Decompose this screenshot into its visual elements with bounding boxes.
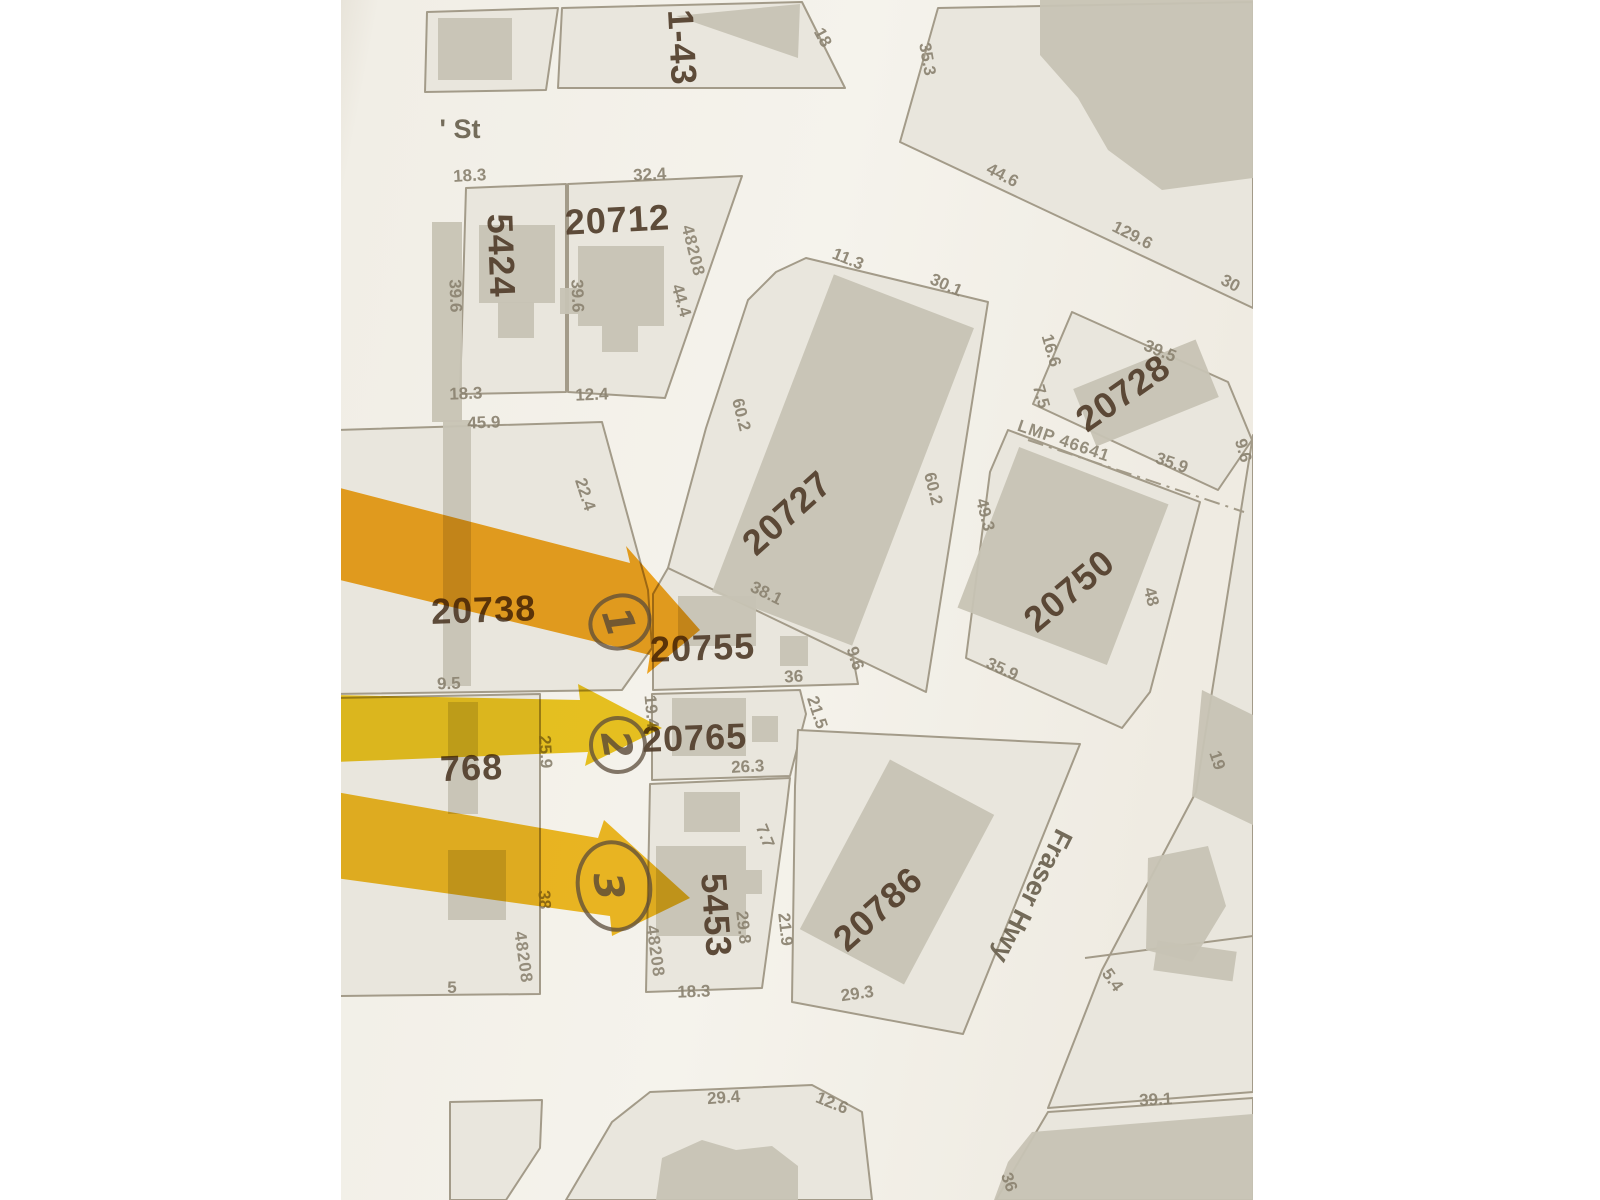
- dimension-label: 39.1: [1139, 1089, 1173, 1110]
- plat-map-screenshot: ' St Fraser Hwy 5424 20712 1-43 20727 20…: [0, 0, 1600, 1200]
- building: [498, 302, 534, 338]
- dimension-label: 18.3: [677, 981, 711, 1001]
- lot-label-1-43: 1-43: [660, 8, 705, 86]
- dimension-label: 36: [784, 667, 804, 687]
- dimension-label: 26.3: [731, 756, 765, 777]
- dimension-label: 39.6: [445, 279, 465, 313]
- dimension-label: 5: [447, 978, 456, 997]
- dimension-label: 29.8: [732, 910, 754, 945]
- building: [780, 636, 808, 666]
- building: [602, 326, 638, 352]
- dimension-label: 39.6: [567, 279, 587, 313]
- dimension-label: 9.5: [437, 674, 461, 694]
- building: [752, 716, 778, 742]
- building-20712: [578, 246, 664, 326]
- dimension-label: 18.3: [449, 383, 483, 403]
- dimension-label: 21.9: [774, 912, 796, 947]
- building: [684, 792, 740, 832]
- lot-label-5424: 5424: [480, 213, 524, 298]
- lot-label-20712: 20712: [564, 196, 671, 242]
- street-label: ' St: [440, 114, 481, 144]
- dimension-label: 32.4: [633, 164, 668, 185]
- plat-map-photo: ' St Fraser Hwy 5424 20712 1-43 20727 20…: [0, 0, 1600, 1200]
- dimension-label: 29.4: [706, 1087, 741, 1108]
- building: [438, 18, 512, 80]
- dimension-label: 18.3: [453, 165, 487, 186]
- dimension-label: 45.9: [467, 412, 501, 432]
- dimension-label: 12.4: [575, 384, 609, 404]
